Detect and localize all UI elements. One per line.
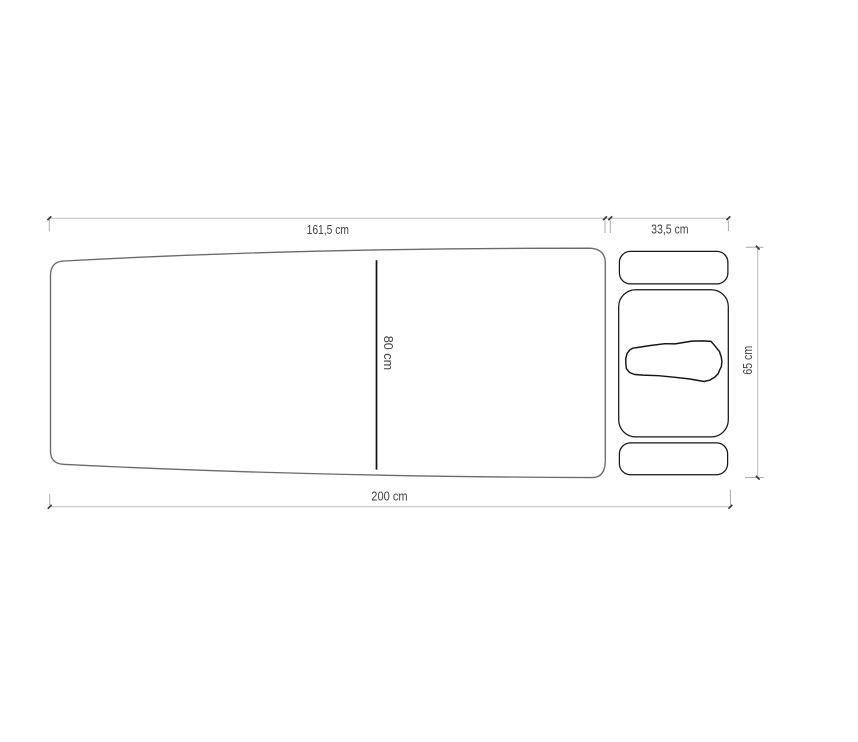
svg-text:80 cm: 80 cm	[381, 336, 396, 370]
svg-text:200 cm: 200 cm	[371, 488, 407, 503]
svg-text:161,5 cm: 161,5 cm	[307, 222, 349, 237]
svg-text:33,5 cm: 33,5 cm	[651, 222, 689, 237]
svg-text:65 cm: 65 cm	[740, 346, 755, 375]
